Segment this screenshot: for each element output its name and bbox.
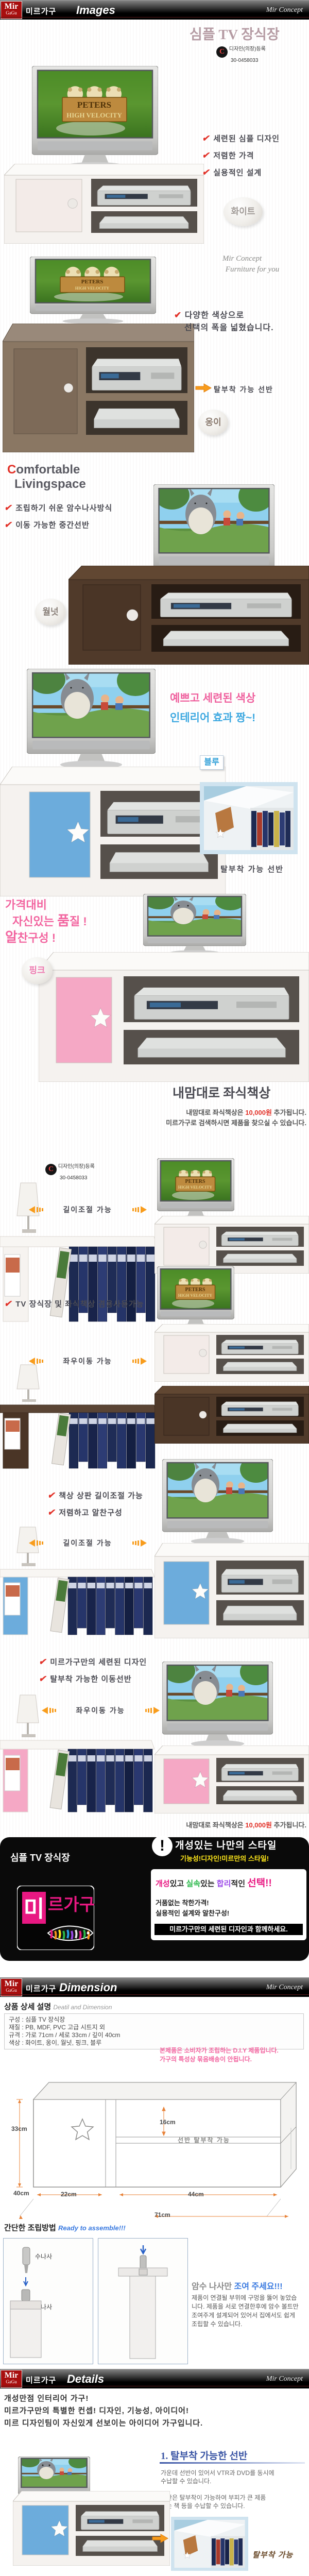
svg-text:HIGH VELOCITY: HIGH VELOCITY [178, 1293, 213, 1298]
svg-text:HIGH VELOCITY: HIGH VELOCITY [66, 111, 122, 119]
svg-text:PETERS: PETERS [77, 100, 111, 110]
svg-text:HIGH VELOCITY: HIGH VELOCITY [75, 286, 110, 291]
svg-text:HIGH VELOCITY: HIGH VELOCITY [178, 1185, 213, 1190]
svg-text:PETERS: PETERS [81, 279, 104, 285]
svg-text:미: 미 [24, 1896, 44, 1922]
svg-text:PETERS: PETERS [185, 1179, 205, 1184]
svg-text:PETERS: PETERS [185, 1287, 205, 1293]
svg-text:수나사: 수나사 [35, 2253, 52, 2260]
svg-text:르가구: 르가구 [48, 1895, 94, 1914]
